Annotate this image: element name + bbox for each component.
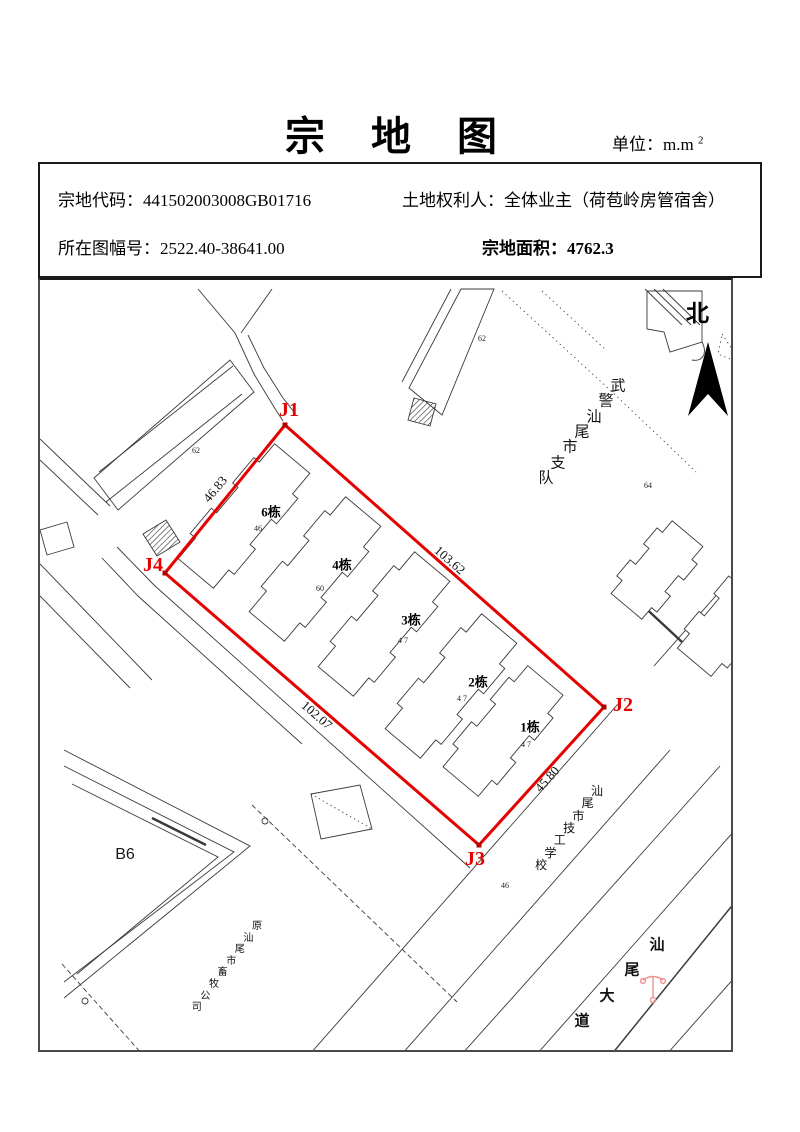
unit-label: 单位：m.m [612,135,694,154]
sheet-no-row: 所在图幅号：2522.40-38641.00 [58,234,285,259]
parcel-info-box: 宗地代码：441502003008GB01716 土地权利人：全体业主（荷苞岭房… [38,162,762,278]
parcel-map-sheet: 宗 地 图 单位：m.m 2 宗地代码：441502003008GB01716 … [0,0,800,1132]
page-title: 宗 地 图 [285,104,515,162]
parcel-code-label: 宗地代码： [58,191,143,210]
parcel-area-value: 4762.3 [567,239,614,258]
street-lamp-icon [640,972,666,1006]
unit-superscript: 2 [698,134,704,146]
parcel-code-row: 宗地代码：441502003008GB01716 [58,186,311,211]
sheet-no-value: 2522.40-38641.00 [160,239,285,258]
cadastral-linework [40,280,731,1050]
owner-row: 土地权利人：全体业主（荷苞岭房管宿舍） [402,186,725,211]
map-frame: 6栋4栋3栋2栋1栋J1J2J3J446.83103.62102.0745.80… [38,278,733,1052]
north-label: 北 [686,294,709,328]
owner-label: 土地权利人： [402,191,504,210]
parcel-area-row: 宗地面积：4762.3 [482,234,614,259]
building-footprints [178,444,731,797]
north-arrow-icon [688,342,728,416]
unit-note: 单位：m.m 2 [612,130,703,155]
parcel-area-label: 宗地面积： [482,239,567,258]
parcel-code-value: 441502003008GB01716 [143,191,311,210]
sheet-no-label: 所在图幅号： [58,239,160,258]
owner-value: 全体业主（荷苞岭房管宿舍） [504,191,725,210]
